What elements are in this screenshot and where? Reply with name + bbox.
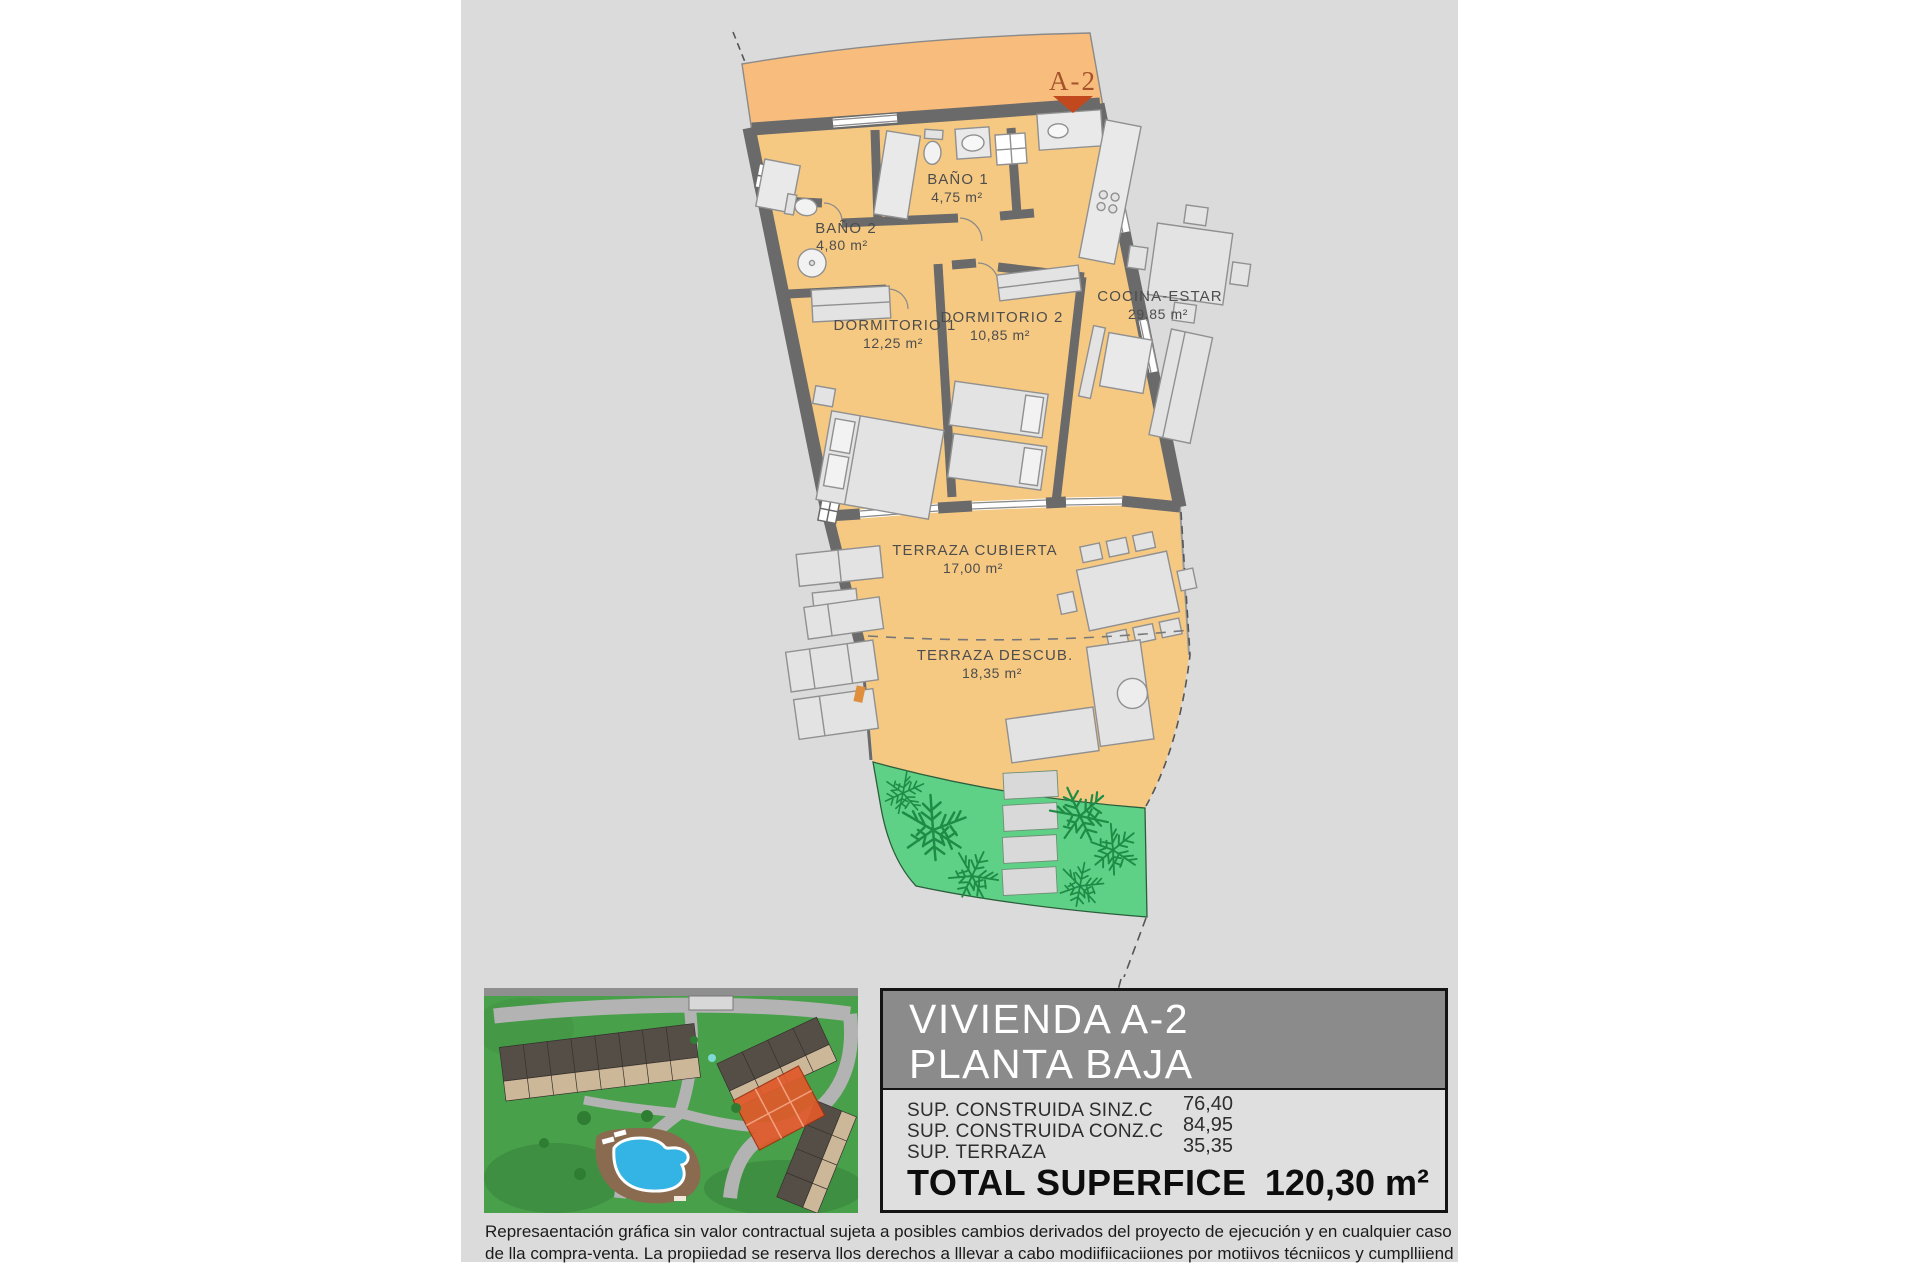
total-surface-row: TOTAL SUPERFICE 120,30 m² xyxy=(907,1162,1429,1204)
coffee-table xyxy=(1100,333,1153,394)
washer-icon xyxy=(995,133,1027,165)
room-label-dorm2: DORMITORIO 2 xyxy=(941,309,1064,326)
kitchen-counter-top xyxy=(1037,110,1103,150)
unit-title-line1: VIVIENDA A-2 xyxy=(909,997,1445,1042)
disclaimer-line1: Represaentación gráfica sin valor contra… xyxy=(485,1221,1453,1243)
room-area-dorm2: 10,85 m² xyxy=(970,327,1030,343)
surface-row-label-2: SUP. CONSTRUIDA CONZ.C xyxy=(907,1121,1445,1142)
room-label-terraza-descub: TERRAZA DESCUB. xyxy=(917,647,1074,664)
room-area-dorm1: 12,25 m² xyxy=(863,335,923,351)
room-area-cocina: 29,85 m² xyxy=(1128,306,1188,322)
disclaimer: Represaentación gráfica sin valor contra… xyxy=(485,1221,1453,1267)
surface-row-label-3: SUP. TERRAZA xyxy=(907,1142,1445,1163)
sink-1-icon xyxy=(955,127,991,159)
room-area-banio2: 4,80 m² xyxy=(816,237,868,253)
room-label-banio2: BAÑO 2 xyxy=(815,220,877,237)
room-area-terraza-descub: 18,35 m² xyxy=(962,665,1022,681)
room-area-terraza-cubierta: 17,00 m² xyxy=(943,560,1003,576)
room-area-banio1: 4,75 m² xyxy=(931,189,983,205)
room-label-dorm1: DORMITORIO 1 xyxy=(834,317,957,334)
sun-lounger-3 xyxy=(794,689,879,740)
site-plan-image xyxy=(484,988,858,1213)
room-label-banio1: BAÑO 1 xyxy=(927,171,989,188)
boundary-tick-top xyxy=(733,32,745,62)
surface-row-value-1: 76,40 xyxy=(1183,1094,1233,1115)
surface-row-value-2: 84,95 xyxy=(1183,1115,1233,1136)
surface-rows: SUP. CONSTRUIDA SINZ.C SUP. CONSTRUIDA C… xyxy=(883,1090,1445,1163)
total-surface-value: 120,30 m² xyxy=(1265,1162,1429,1204)
title-block-header: VIVIENDA A-2 PLANTA BAJA xyxy=(883,991,1445,1090)
total-surface-label: TOTAL SUPERFICE xyxy=(907,1162,1247,1204)
unit-title-line2: PLANTA BAJA xyxy=(909,1042,1445,1087)
surface-row-label-1: SUP. CONSTRUIDA SINZ.C xyxy=(907,1100,1445,1121)
surface-row-value-3: 35,35 xyxy=(1183,1136,1233,1157)
site-fountain xyxy=(708,1054,716,1062)
room-label-cocina: COCINA-ESTAR xyxy=(1097,288,1222,305)
title-block: VIVIENDA A-2 PLANTA BAJA SUP. CONSTRUIDA… xyxy=(880,988,1448,1213)
brochure-page: BAÑO 1 4,75 m² BAÑO 2 4,80 m² DORMITORIO… xyxy=(0,0,1920,1280)
disclaimer-line2: de lla compra-venta. La propiiedad se re… xyxy=(485,1243,1453,1265)
unit-marker-label: A-2 xyxy=(1049,66,1097,96)
room-label-terraza-cubierta: TERRAZA CUBIERTA xyxy=(892,542,1057,559)
boundary-bottom-dashed xyxy=(1117,918,1146,994)
